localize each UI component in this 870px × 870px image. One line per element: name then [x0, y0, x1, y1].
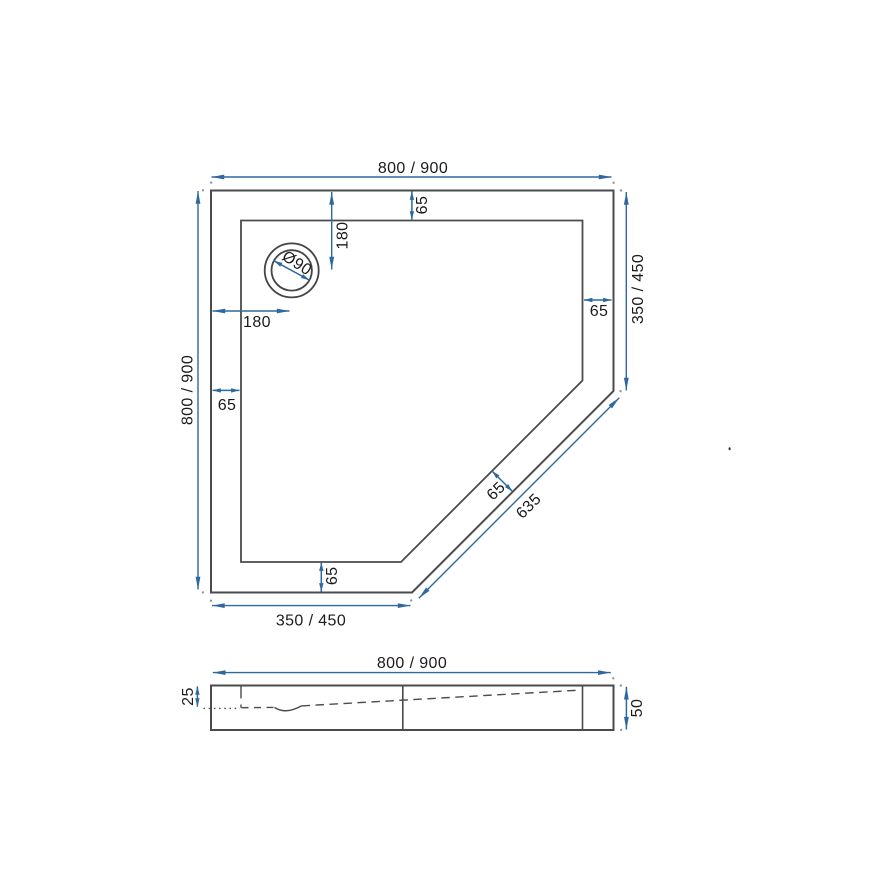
svg-text:65: 65	[218, 397, 237, 414]
svg-text:50: 50	[629, 699, 646, 718]
svg-text:800 / 900: 800 / 900	[377, 655, 447, 672]
svg-text:180: 180	[335, 222, 352, 250]
svg-text:350 / 450: 350 / 450	[630, 254, 647, 324]
svg-text:65: 65	[324, 566, 341, 585]
svg-text:65: 65	[414, 196, 431, 215]
svg-text:635: 635	[513, 491, 545, 523]
svg-text:65: 65	[590, 303, 609, 320]
svg-text:Ø90: Ø90	[279, 248, 315, 279]
svg-text:800 / 900: 800 / 900	[180, 355, 197, 425]
svg-text:800 / 900: 800 / 900	[378, 160, 448, 177]
svg-text:350 / 450: 350 / 450	[276, 613, 346, 630]
svg-text:180: 180	[243, 314, 271, 331]
svg-text:25: 25	[180, 687, 197, 706]
